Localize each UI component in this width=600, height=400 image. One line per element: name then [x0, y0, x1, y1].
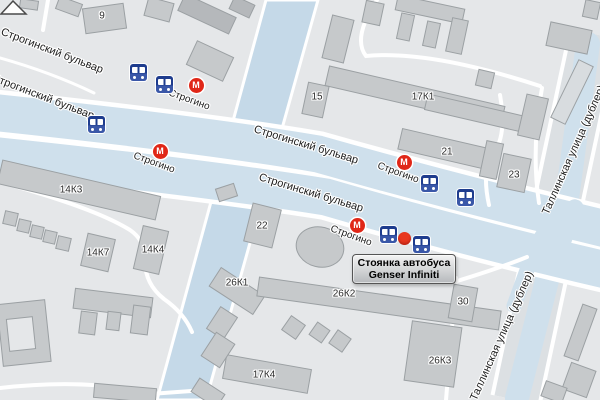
metro-station-icon[interactable]: М — [397, 155, 412, 170]
building-label-14k3: 14К3 — [60, 185, 83, 196]
building-label-26k3: 26К3 — [429, 356, 452, 367]
building-label-26k2: 26К2 — [333, 289, 356, 300]
building-label-17k1: 17К1 — [412, 92, 435, 103]
building-label-15: 15 — [311, 92, 322, 103]
building-26k3 — [404, 321, 462, 387]
map-balloon[interactable]: Стоянка автобуса Genser Infiniti — [352, 254, 456, 284]
map-canvas[interactable]: Строгинский бульвар Строгинский бульвар … — [0, 0, 600, 400]
building-label-9: 9 — [99, 11, 105, 22]
building-label-22: 22 — [256, 221, 267, 232]
metro-station-icon[interactable]: М — [189, 78, 204, 93]
balloon-line-1: Стоянка автобуса — [356, 257, 452, 269]
bus-stop-icon[interactable] — [413, 236, 430, 253]
bus-stop-icon[interactable] — [457, 189, 474, 206]
bus-stop-icon[interactable] — [130, 64, 147, 81]
building-label-14k4: 14К4 — [142, 245, 165, 256]
callout-pointer — [0, 0, 28, 15]
building-label-17k4: 17К4 — [253, 370, 276, 381]
metro-station-icon[interactable]: М — [350, 218, 365, 233]
poi-marker-icon[interactable] — [398, 232, 411, 245]
bus-stop-icon[interactable] — [421, 175, 438, 192]
balloon-line-2: Genser Infiniti — [356, 269, 452, 281]
bus-stop-icon[interactable] — [380, 226, 397, 243]
bus-stop-icon[interactable] — [156, 76, 173, 93]
building-label-23: 23 — [508, 170, 519, 181]
building-label-30: 30 — [457, 297, 468, 308]
building-label-26k1: 26К1 — [226, 278, 249, 289]
building-label-14k7: 14К7 — [87, 248, 110, 259]
building-label-21: 21 — [441, 147, 452, 158]
metro-station-icon[interactable]: М — [153, 144, 168, 159]
bus-stop-icon[interactable] — [88, 116, 105, 133]
